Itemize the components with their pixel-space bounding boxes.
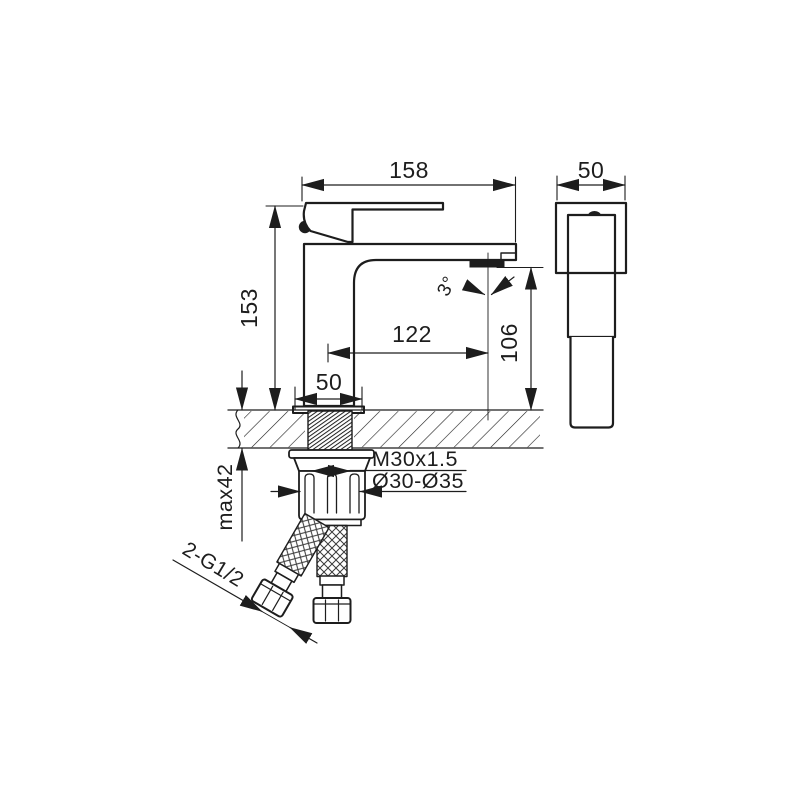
mounting-cone <box>294 458 370 471</box>
dimension-side-width: 50 <box>557 157 625 200</box>
lever-handle <box>304 203 443 242</box>
vertical-hose-ferrule <box>320 576 344 585</box>
angle-leader-right <box>492 277 515 295</box>
vertical-hose-collar <box>323 585 342 598</box>
front-view: 158 153 122 106 3° <box>173 157 543 643</box>
dim-m30-label: M30x1.5 <box>372 447 458 471</box>
aerator-outlet <box>470 260 505 268</box>
dim-153-label: 153 <box>236 288 262 328</box>
counter-hatch-left <box>244 411 305 447</box>
counter-break-line <box>236 410 240 448</box>
dimension-spray-angle: 3° <box>433 273 514 300</box>
side-body <box>568 215 615 337</box>
dimension-max-deck-thickness: max42 <box>213 371 242 541</box>
vertical-hose-hex-nut <box>314 598 351 623</box>
faucet-installation-drawing: 158 153 122 106 3° <box>0 0 800 800</box>
side-view: 50 <box>556 157 626 428</box>
supply-hoses <box>251 512 351 623</box>
side-indicator-dot <box>588 211 601 216</box>
dim-122-label: 122 <box>392 321 432 347</box>
dim-dia-label: Ø30-Ø35 <box>372 469 464 493</box>
g12-arrow-lower <box>290 628 317 644</box>
mounting-washer <box>289 450 374 458</box>
dimension-total-height: 153 <box>236 206 303 410</box>
threaded-shank <box>308 411 352 450</box>
mounting-hardware <box>289 450 374 526</box>
countertop-section <box>228 410 543 450</box>
angle-leader-left <box>465 285 485 295</box>
dim-50base-label: 50 <box>316 369 343 395</box>
dim-158-label: 158 <box>389 157 429 183</box>
mounting-nut-body <box>299 471 365 520</box>
side-lower-column <box>571 337 614 428</box>
counter-hatch-right <box>354 411 540 447</box>
dim-50side-label: 50 <box>578 157 605 183</box>
technical-drawing-page: 158 153 122 106 3° <box>0 0 800 800</box>
dim-3deg-label: 3° <box>433 273 461 300</box>
dimension-outlet-height: 106 <box>496 268 543 411</box>
dim-106-label: 106 <box>496 323 522 363</box>
dim-max42-label: max42 <box>213 463 237 530</box>
